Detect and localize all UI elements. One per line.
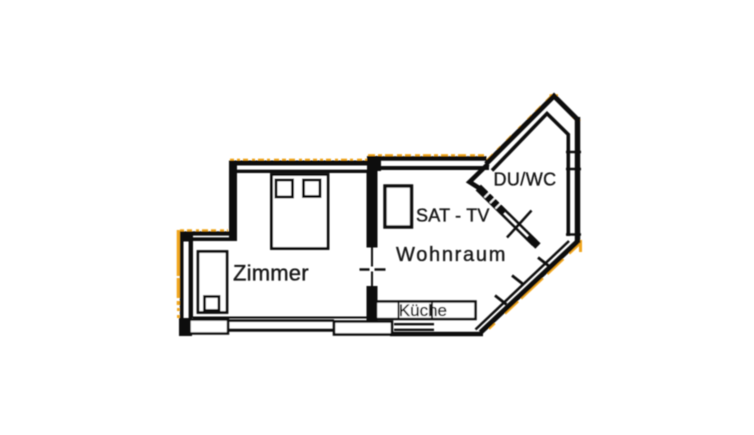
svg-text:Zimmer: Zimmer — [233, 261, 309, 286]
svg-text:SAT - TV: SAT - TV — [416, 205, 490, 225]
svg-text:Wohnraum: Wohnraum — [396, 244, 507, 266]
svg-text:Küche: Küche — [399, 301, 447, 320]
svg-text:DU/WC: DU/WC — [494, 170, 557, 190]
